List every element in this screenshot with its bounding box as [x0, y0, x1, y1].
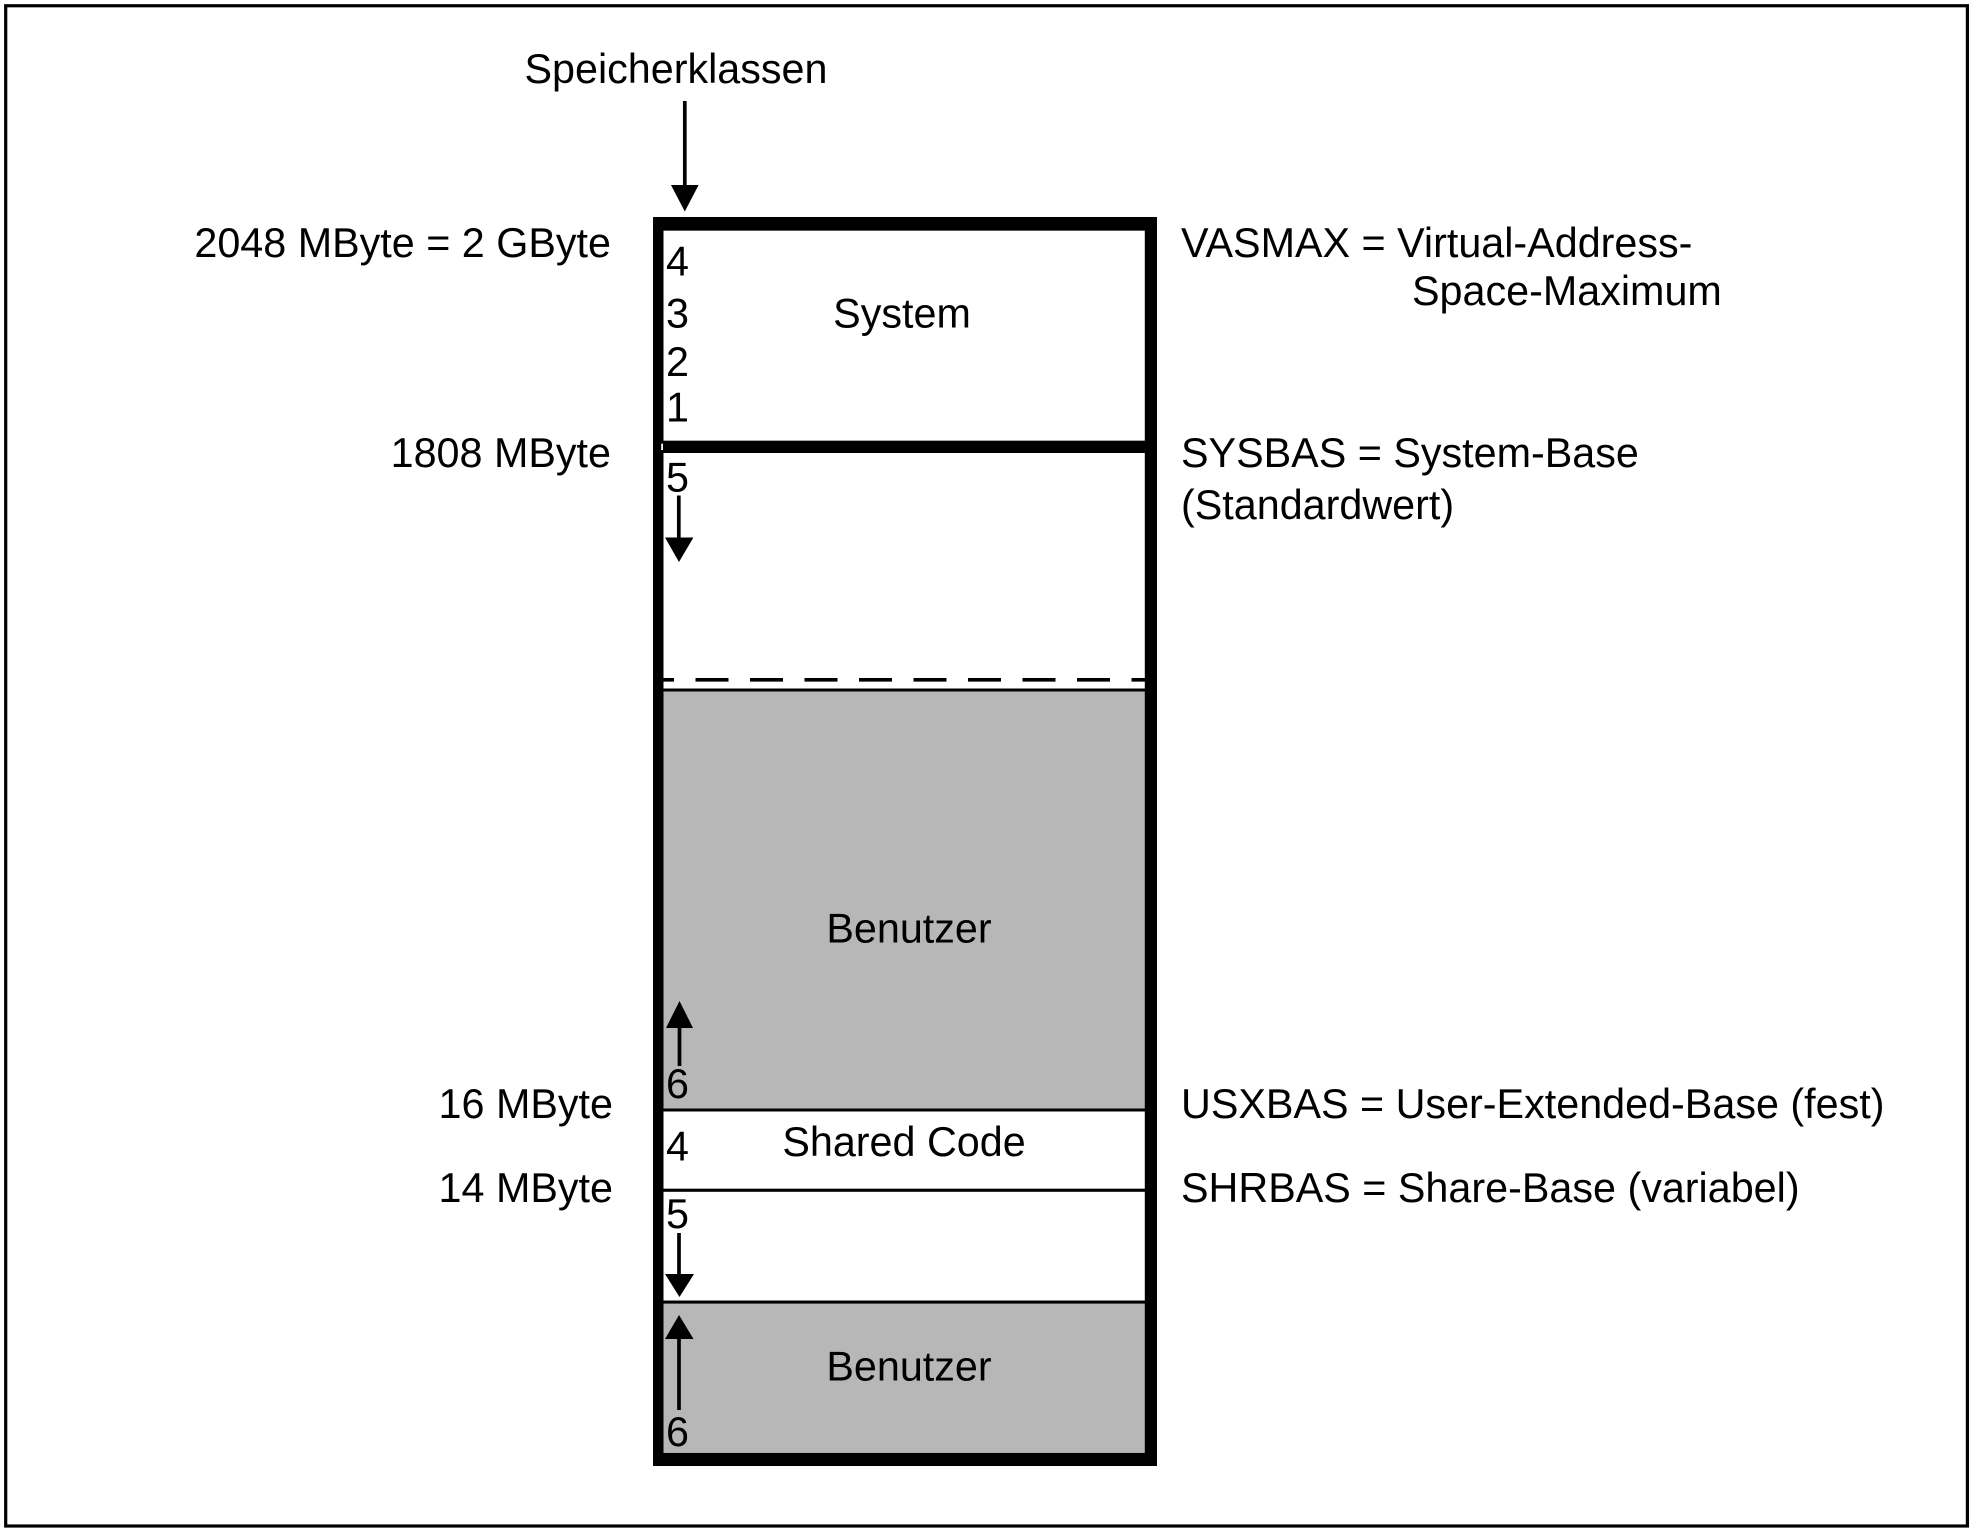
svg-text:Space-Maximum: Space-Maximum [1412, 268, 1722, 314]
svg-text:6: 6 [666, 1061, 689, 1107]
svg-text:Benutzer: Benutzer [826, 906, 992, 952]
svg-text:3: 3 [666, 291, 689, 337]
svg-text:Speicherklassen: Speicherklassen [524, 46, 827, 92]
svg-text:SHRBAS = Share-Base (variabel): SHRBAS = Share-Base (variabel) [1181, 1165, 1800, 1211]
svg-text:(Standardwert): (Standardwert) [1181, 482, 1454, 528]
svg-text:2048 MByte = 2 GByte: 2048 MByte = 2 GByte [194, 220, 611, 266]
svg-text:4: 4 [666, 1124, 689, 1170]
svg-text:2: 2 [666, 339, 689, 385]
svg-text:4: 4 [666, 239, 689, 285]
svg-text:System: System [833, 291, 971, 337]
svg-text:Shared Code: Shared Code [782, 1119, 1025, 1165]
svg-text:USXBAS = User-Extended-Base (f: USXBAS = User-Extended-Base (fest) [1181, 1081, 1884, 1127]
svg-text:1808 MByte: 1808 MByte [391, 430, 611, 476]
svg-text:VASMAX = Virtual-Address-: VASMAX = Virtual-Address- [1181, 220, 1692, 266]
svg-text:5: 5 [666, 1191, 689, 1237]
svg-text:16 MByte: 16 MByte [439, 1081, 613, 1127]
svg-text:6: 6 [666, 1409, 689, 1455]
svg-text:Benutzer: Benutzer [826, 1344, 992, 1390]
svg-text:1: 1 [666, 385, 689, 431]
svg-text:14 MByte: 14 MByte [439, 1165, 613, 1211]
svg-text:SYSBAS = System-Base: SYSBAS = System-Base [1181, 430, 1639, 476]
svg-text:5: 5 [666, 455, 689, 501]
